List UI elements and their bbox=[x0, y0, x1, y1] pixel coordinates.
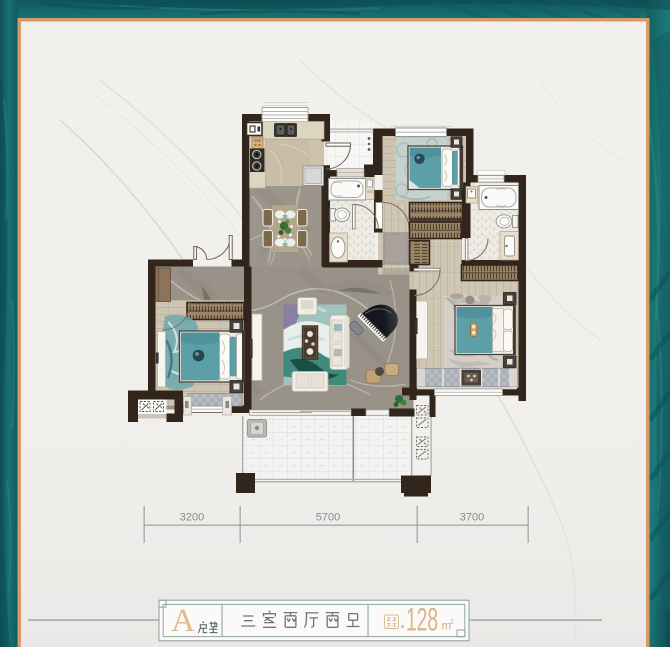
svg-text:128: 128 bbox=[406, 602, 438, 638]
svg-text:3200: 3200 bbox=[180, 512, 204, 524]
svg-text:2: 2 bbox=[450, 619, 454, 626]
svg-text:5700: 5700 bbox=[316, 512, 340, 524]
svg-text:A: A bbox=[171, 603, 195, 639]
svg-text:3700: 3700 bbox=[460, 512, 484, 524]
